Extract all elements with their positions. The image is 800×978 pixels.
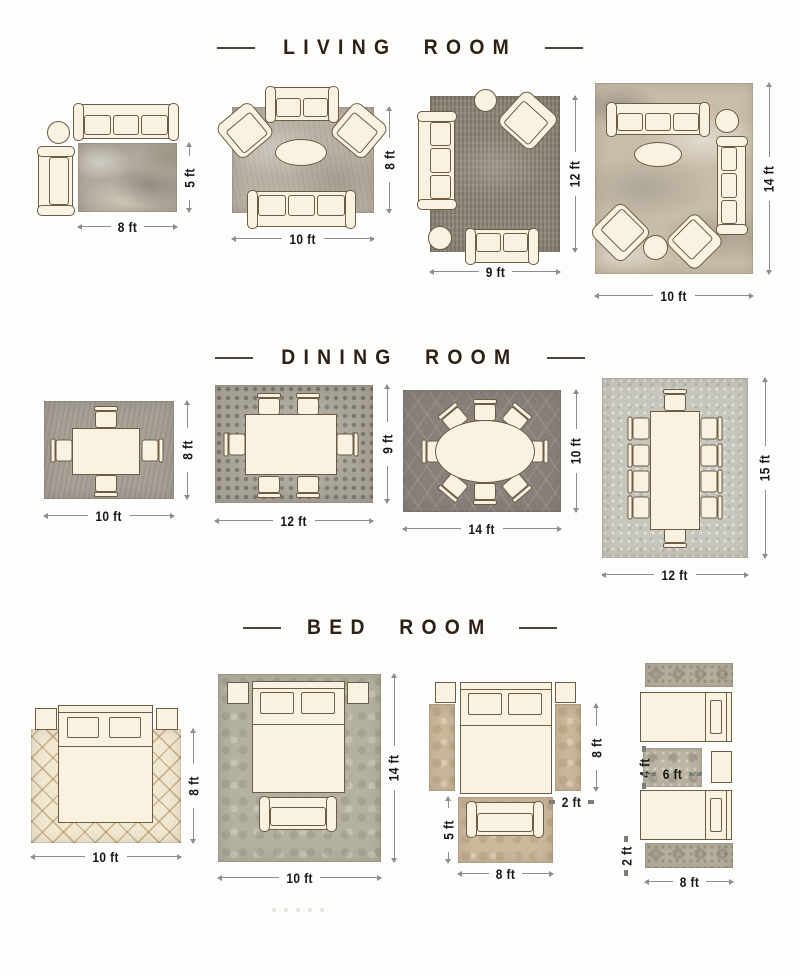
runner-rug: [645, 843, 733, 868]
mid-rug-width-dimension: 6 ft: [643, 766, 702, 781]
rug-size-guide: LIVING ROOM 8 ft 5 ft 10 ft: [0, 0, 800, 978]
bed-layout-twin-beds: 4 ft 6 ft 2 ft 8 ft: [0, 0, 800, 978]
runner-rug: [645, 663, 733, 687]
runner-height-dimension: 2 ft: [618, 836, 634, 876]
watermark: [272, 908, 332, 912]
runner-width-dimension: 8 ft: [645, 874, 733, 889]
nightstand: [711, 751, 732, 783]
twin-bed: [640, 790, 732, 840]
twin-bed: [640, 692, 732, 742]
